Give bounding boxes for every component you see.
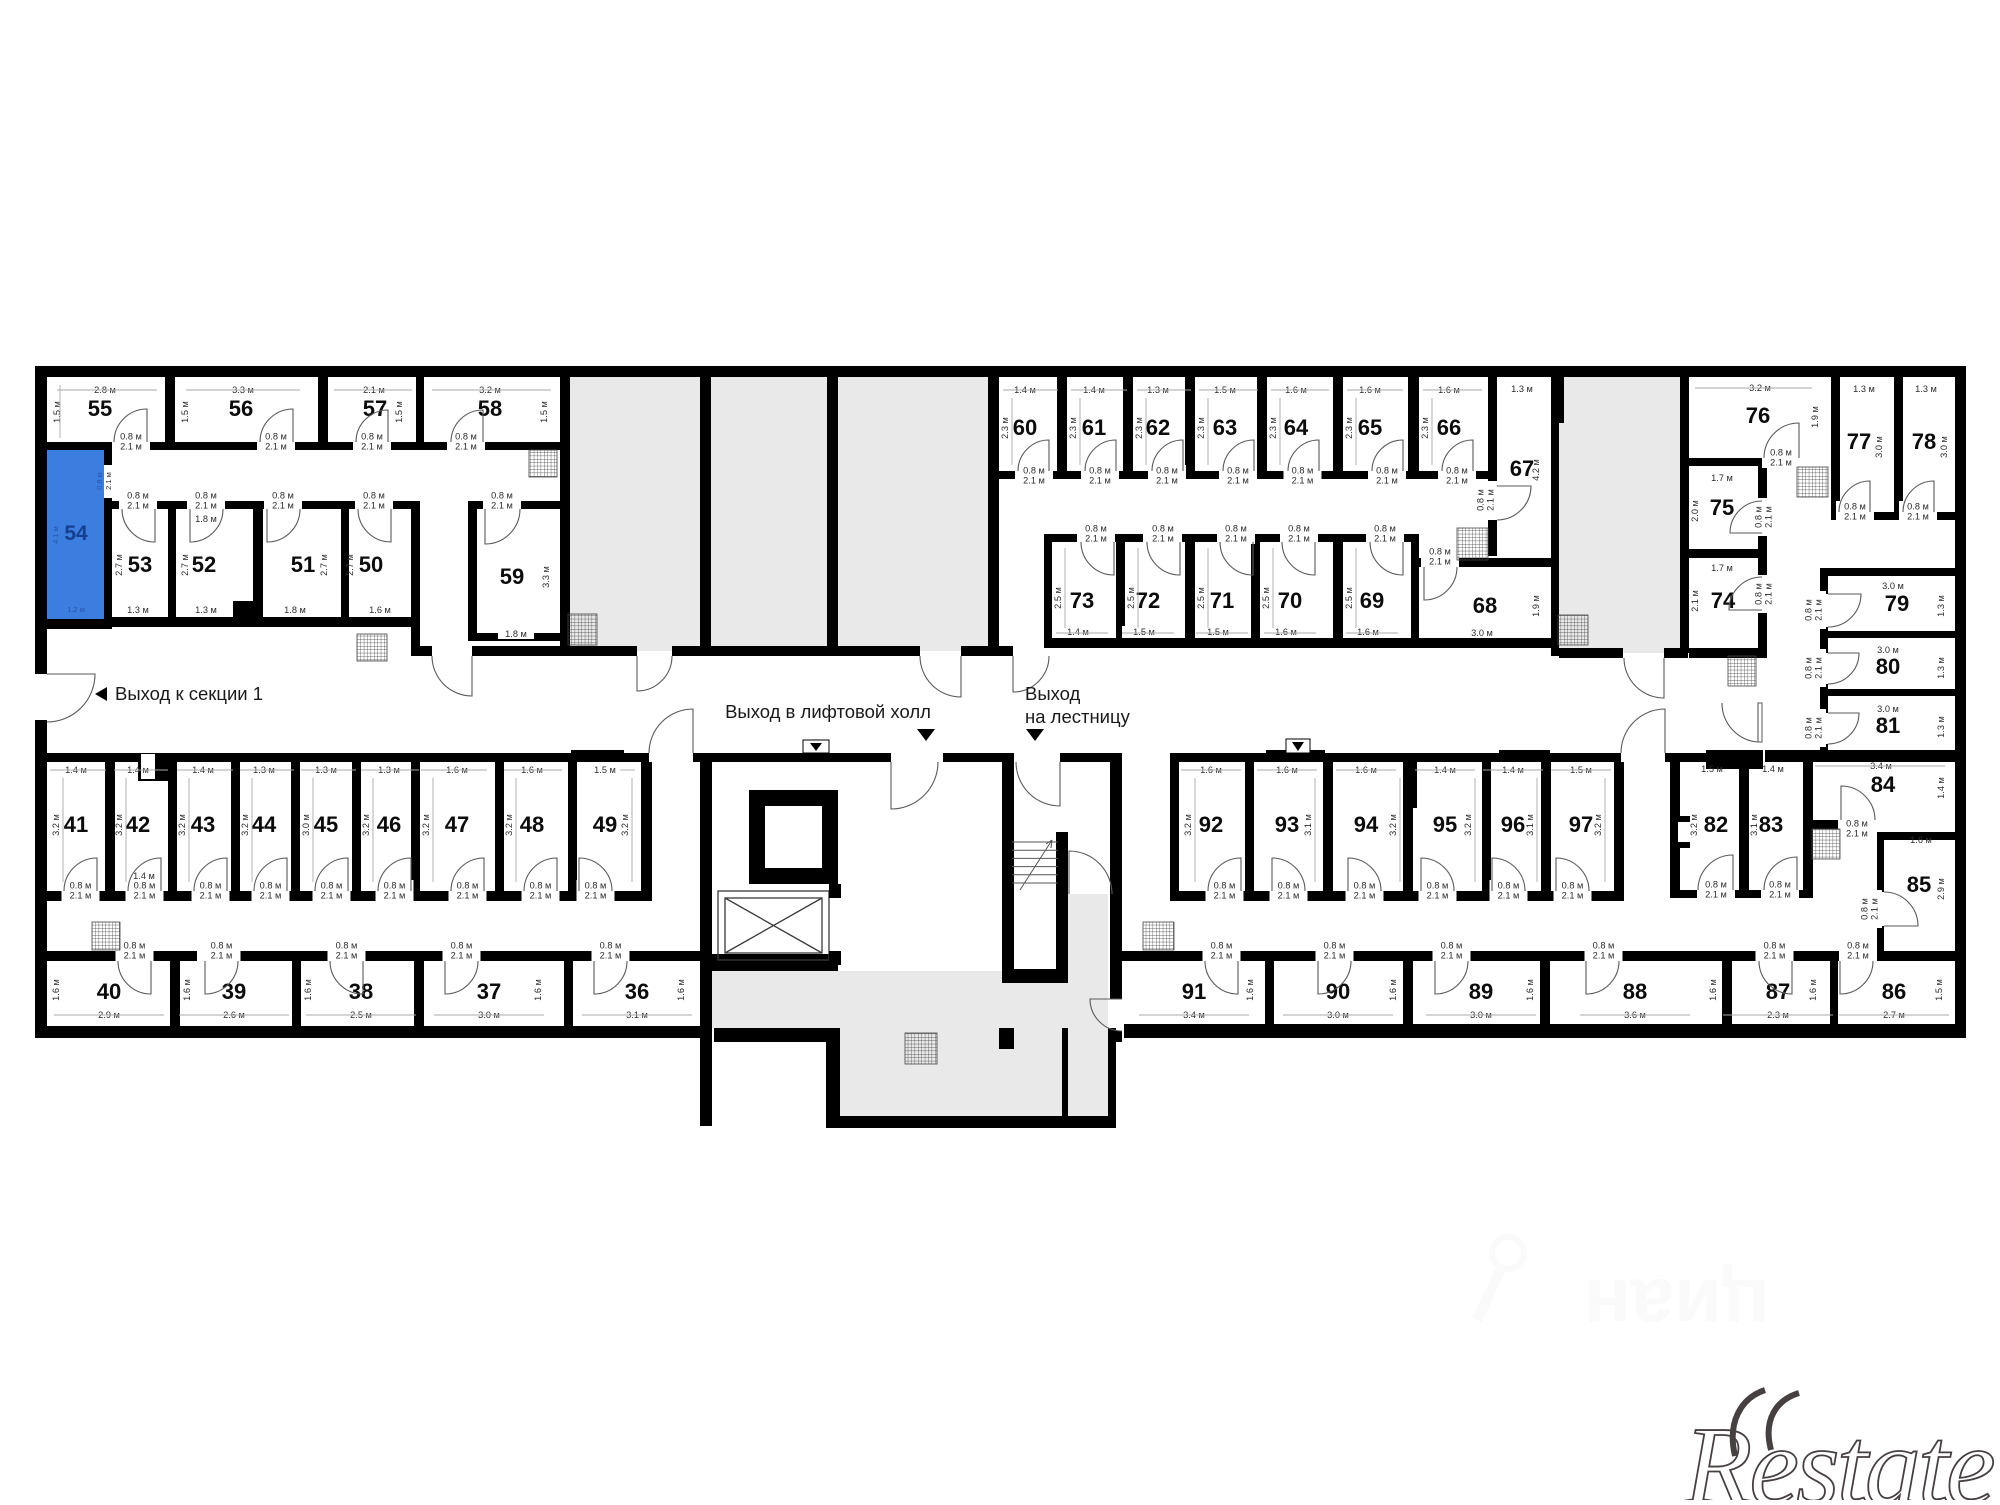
svg-text:3.2 м: 3.2 м <box>421 814 431 836</box>
svg-text:Выход: Выход <box>1025 683 1081 704</box>
svg-text:Выход в лифтовой холл: Выход в лифтовой холл <box>725 701 931 722</box>
svg-text:0.8 м: 0.8 м <box>457 881 479 891</box>
svg-text:0.8 м: 0.8 м <box>1023 466 1045 476</box>
svg-text:2.1 м: 2.1 м <box>1770 458 1792 468</box>
svg-text:3.2 м: 3.2 м <box>114 814 124 836</box>
svg-text:3.0 м: 3.0 м <box>1877 704 1899 714</box>
svg-text:0.8 м: 0.8 м <box>200 881 222 891</box>
svg-text:0.8 м: 0.8 м <box>1847 941 1869 951</box>
svg-text:2.1 м: 2.1 м <box>1847 951 1869 961</box>
svg-text:2.1 м: 2.1 м <box>1486 489 1496 511</box>
svg-text:85: 85 <box>1907 872 1931 897</box>
svg-text:93: 93 <box>1275 812 1299 837</box>
svg-text:58: 58 <box>478 396 502 421</box>
svg-text:0.8 м: 0.8 м <box>491 491 513 501</box>
svg-text:2.1 м: 2.1 м <box>361 442 383 452</box>
svg-text:0.8 м: 0.8 м <box>1446 466 1468 476</box>
svg-text:37: 37 <box>477 979 501 1004</box>
svg-text:2.1 м: 2.1 м <box>530 891 552 901</box>
svg-text:77: 77 <box>1847 429 1871 454</box>
svg-text:2.1 м: 2.1 м <box>363 501 385 511</box>
svg-text:2.1 м: 2.1 м <box>1374 534 1396 544</box>
svg-text:0.8 м: 0.8 м <box>1593 941 1615 951</box>
svg-text:0.8 м: 0.8 м <box>363 491 385 501</box>
svg-text:2.5 м: 2.5 м <box>1344 587 1354 609</box>
svg-text:1.3 м: 1.3 м <box>1511 384 1533 394</box>
svg-text:2.1 м: 2.1 м <box>127 501 149 511</box>
svg-text:2.1 м: 2.1 м <box>1562 891 1584 901</box>
svg-text:95: 95 <box>1433 812 1457 837</box>
svg-text:3.0 м: 3.0 м <box>1471 628 1493 638</box>
svg-text:71: 71 <box>1210 588 1234 613</box>
svg-text:2.1 м: 2.1 м <box>134 891 156 901</box>
svg-text:2.1 м: 2.1 м <box>1152 534 1174 544</box>
svg-text:1.5 м: 1.5 м <box>594 765 616 775</box>
svg-text:2.1 м: 2.1 м <box>1324 951 1346 961</box>
svg-text:48: 48 <box>520 812 544 837</box>
svg-text:2.1 м: 2.1 м <box>1429 557 1451 567</box>
svg-text:1.6 м: 1.6 м <box>1910 835 1932 845</box>
svg-text:44: 44 <box>252 812 277 837</box>
svg-text:1.6 м: 1.6 м <box>303 979 313 1001</box>
svg-text:0.8 м: 0.8 м <box>1211 941 1233 951</box>
svg-text:1.5 м: 1.5 м <box>180 401 190 423</box>
svg-text:Выход к секции 1: Выход к секции 1 <box>115 683 263 704</box>
svg-text:2.5 м: 2.5 м <box>1053 587 1063 609</box>
svg-text:69: 69 <box>1360 588 1384 613</box>
svg-text:2.1 м: 2.1 м <box>336 951 358 961</box>
svg-text:43: 43 <box>191 812 215 837</box>
svg-text:1.6 м: 1.6 м <box>533 979 543 1001</box>
svg-text:1.3 м: 1.3 м <box>1936 657 1946 679</box>
svg-text:2.3 м: 2.3 м <box>1344 417 1354 439</box>
svg-text:2.1 м: 2.1 м <box>1814 657 1824 679</box>
svg-text:96: 96 <box>1501 812 1525 837</box>
svg-text:1.3 м: 1.3 м <box>1936 716 1946 738</box>
svg-text:2.1 м: 2.1 м <box>1211 951 1233 961</box>
svg-text:2.1 м: 2.1 м <box>104 472 113 490</box>
svg-text:78: 78 <box>1912 429 1936 454</box>
svg-text:1.6 м: 1.6 м <box>1245 979 1255 1001</box>
svg-text:3.1 м: 3.1 м <box>1749 814 1759 836</box>
svg-text:2.9 м: 2.9 м <box>1936 878 1946 900</box>
svg-text:2.1 м: 2.1 м <box>1225 534 1247 544</box>
svg-text:2.1 м: 2.1 м <box>120 442 142 452</box>
svg-text:2.1 м: 2.1 м <box>195 501 217 511</box>
svg-text:2.1 м: 2.1 м <box>272 501 294 511</box>
svg-text:0.8 м: 0.8 м <box>1085 524 1107 534</box>
svg-text:2.5 м: 2.5 м <box>1126 587 1136 609</box>
svg-text:0.8 м: 0.8 м <box>195 491 217 501</box>
svg-text:3.0 м: 3.0 м <box>1882 581 1904 591</box>
svg-text:2.1 м: 2.1 м <box>1156 476 1178 486</box>
svg-text:0.8 м: 0.8 м <box>1374 524 1396 534</box>
svg-text:1.4 м: 1.4 м <box>1762 764 1784 774</box>
svg-text:2.1 м: 2.1 м <box>1498 891 1520 901</box>
svg-text:39: 39 <box>222 979 246 1004</box>
svg-text:47: 47 <box>445 812 469 837</box>
svg-text:4.2 м: 4.2 м <box>1531 459 1541 481</box>
svg-text:2.1 м: 2.1 м <box>1085 534 1107 544</box>
svg-text:1.6 м: 1.6 м <box>1708 979 1718 1001</box>
svg-text:1.5 м: 1.5 м <box>52 401 62 423</box>
svg-text:3.2 м: 3.2 м <box>1593 814 1603 836</box>
svg-text:0.8 м: 0.8 м <box>1441 941 1463 951</box>
svg-text:1.7 м: 1.7 м <box>1711 473 1733 483</box>
svg-text:68: 68 <box>1473 593 1497 618</box>
svg-text:79: 79 <box>1885 591 1909 616</box>
svg-text:74: 74 <box>1711 588 1736 613</box>
svg-text:3.3 м: 3.3 м <box>541 566 551 588</box>
svg-text:2.1 м: 2.1 м <box>585 891 607 901</box>
svg-text:3.2 м: 3.2 м <box>620 814 630 836</box>
svg-text:0.8 м: 0.8 м <box>1804 717 1814 739</box>
svg-text:2.1 м: 2.1 м <box>1870 898 1880 920</box>
svg-text:1.5 м: 1.5 м <box>539 401 549 423</box>
svg-text:2.1 м: 2.1 м <box>200 891 222 901</box>
svg-text:1.5 м: 1.5 м <box>1701 764 1723 774</box>
svg-text:2.1 м: 2.1 м <box>1846 829 1868 839</box>
svg-text:0.8 м: 0.8 м <box>272 491 294 501</box>
svg-text:56: 56 <box>229 396 253 421</box>
svg-text:83: 83 <box>1759 812 1783 837</box>
svg-text:Restate: Restate <box>1683 1405 1994 1500</box>
svg-text:1.9 м: 1.9 м <box>1531 595 1541 617</box>
svg-text:0.8 м: 0.8 м <box>1292 466 1314 476</box>
svg-text:2.1 м: 2.1 м <box>1292 476 1314 486</box>
svg-text:1.6 м: 1.6 м <box>182 979 192 1001</box>
svg-text:2.1 м: 2.1 м <box>1023 476 1045 486</box>
svg-text:1.5 м: 1.5 м <box>1133 627 1155 637</box>
svg-text:3.1 м: 3.1 м <box>1303 814 1313 836</box>
svg-text:0.8 м: 0.8 м <box>70 881 92 891</box>
svg-text:2.1 м: 2.1 м <box>600 951 622 961</box>
svg-text:2.1 м: 2.1 м <box>1814 599 1824 621</box>
svg-text:1.7 м: 1.7 м <box>1711 563 1733 573</box>
svg-text:0.8 м: 0.8 м <box>1754 506 1764 528</box>
svg-text:50: 50 <box>359 552 383 577</box>
svg-text:1.6 м: 1.6 м <box>1357 627 1379 637</box>
svg-text:2.3 м: 2.3 м <box>1420 417 1430 439</box>
svg-text:2.7 м: 2.7 м <box>345 554 355 576</box>
svg-text:1.3 м: 1.3 м <box>1915 384 1937 394</box>
svg-text:2.1 м: 2.1 м <box>1427 891 1449 901</box>
svg-text:2.1 м: 2.1 м <box>1690 590 1700 612</box>
svg-text:2.1 м: 2.1 м <box>491 501 513 511</box>
svg-text:1.2 м: 1.2 м <box>67 605 85 614</box>
svg-text:1.5 м: 1.5 м <box>394 401 404 423</box>
svg-text:84: 84 <box>1871 772 1896 797</box>
svg-text:1.3 м: 1.3 м <box>1853 384 1875 394</box>
svg-text:2.0 м: 2.0 м <box>1690 500 1700 522</box>
svg-text:0.8 м: 0.8 м <box>1156 466 1178 476</box>
svg-text:0.8 м: 0.8 м <box>1089 466 1111 476</box>
svg-text:3.2 м: 3.2 м <box>361 814 371 836</box>
svg-text:3.1 м: 3.1 м <box>1525 814 1535 836</box>
svg-text:1.5 м: 1.5 м <box>1207 627 1229 637</box>
svg-text:0.8 м: 0.8 м <box>1562 881 1584 891</box>
svg-text:3.2 м: 3.2 м <box>504 814 514 836</box>
svg-text:0.8 м: 0.8 м <box>1498 881 1520 891</box>
svg-text:81: 81 <box>1876 713 1900 738</box>
svg-text:0.8 м: 0.8 м <box>1476 489 1486 511</box>
svg-text:0.8 м: 0.8 м <box>124 941 146 951</box>
svg-text:0.8 м: 0.8 м <box>1225 524 1247 534</box>
svg-text:1.5 м: 1.5 м <box>1934 979 1944 1001</box>
svg-text:0.8 м: 0.8 м <box>265 432 287 442</box>
svg-text:2.1 м: 2.1 м <box>1814 717 1824 739</box>
svg-text:0.8 м: 0.8 м <box>1152 524 1174 534</box>
svg-text:3.2 м: 3.2 м <box>1689 814 1699 836</box>
svg-text:0.8 м: 0.8 м <box>1907 502 1929 512</box>
svg-text:49: 49 <box>593 812 617 837</box>
svg-text:36: 36 <box>625 979 649 1004</box>
svg-text:2.7 м: 2.7 м <box>180 554 190 576</box>
svg-text:2.1 м: 2.1 м <box>1593 951 1615 961</box>
svg-text:1.8 м: 1.8 м <box>195 514 217 524</box>
svg-text:1.8 м: 1.8 м <box>505 629 527 639</box>
svg-text:53: 53 <box>128 552 152 577</box>
svg-text:0.8 м: 0.8 м <box>260 881 282 891</box>
svg-text:2.1 м: 2.1 м <box>1441 951 1463 961</box>
svg-text:2.1 м: 2.1 м <box>1376 476 1398 486</box>
svg-text:3.0 м: 3.0 м <box>1877 645 1899 655</box>
svg-text:0.8 м: 0.8 м <box>134 881 156 891</box>
svg-text:0.8 м: 0.8 м <box>361 432 383 442</box>
svg-text:0.8 м: 0.8 м <box>1844 502 1866 512</box>
svg-text:0.8 м: 0.8 м <box>1324 941 1346 951</box>
svg-text:55: 55 <box>88 396 112 421</box>
svg-text:2.1 м: 2.1 м <box>1354 891 1376 901</box>
svg-text:2.1 м: 2.1 м <box>1769 890 1791 900</box>
svg-text:0.8 м: 0.8 м <box>1705 880 1727 890</box>
svg-text:1.6 м: 1.6 м <box>1525 979 1535 1001</box>
svg-text:2.1 м: 2.1 м <box>1227 476 1249 486</box>
svg-text:54: 54 <box>64 522 88 545</box>
svg-text:89: 89 <box>1469 979 1493 1004</box>
svg-text:3.2 м: 3.2 м <box>51 814 61 836</box>
svg-text:92: 92 <box>1199 812 1223 837</box>
svg-text:2.1 м: 2.1 м <box>1764 506 1774 528</box>
svg-text:2.1 м: 2.1 м <box>1278 891 1300 901</box>
svg-text:3.0 м: 3.0 м <box>1874 436 1884 458</box>
svg-text:3.2 м: 3.2 м <box>240 814 250 836</box>
svg-text:0.8 м: 0.8 м <box>1846 819 1868 829</box>
svg-text:2.1 м: 2.1 м <box>211 951 233 961</box>
svg-text:2.3 м: 2.3 м <box>1196 417 1206 439</box>
svg-text:2.1 м: 2.1 м <box>260 891 282 901</box>
svg-text:42: 42 <box>126 812 150 837</box>
svg-text:2.3 м: 2.3 м <box>1268 417 1278 439</box>
svg-text:2.1 м: 2.1 м <box>1764 951 1786 961</box>
svg-text:2.1 м: 2.1 м <box>1907 512 1929 522</box>
svg-text:1.6 м: 1.6 м <box>1275 627 1297 637</box>
svg-text:86: 86 <box>1882 979 1906 1004</box>
svg-text:0.8 м: 0.8 м <box>1804 599 1814 621</box>
svg-text:40: 40 <box>97 979 121 1004</box>
svg-text:0.8 м: 0.8 м <box>1860 898 1870 920</box>
svg-text:2.1 м: 2.1 м <box>455 442 477 452</box>
svg-text:3.2 м: 3.2 м <box>1388 814 1398 836</box>
svg-text:0.8 м: 0.8 м <box>1214 881 1236 891</box>
svg-text:0.8 м: 0.8 м <box>600 941 622 951</box>
svg-text:0.8 м: 0.8 м <box>95 472 104 490</box>
svg-text:70: 70 <box>1278 588 1302 613</box>
svg-text:60: 60 <box>1013 415 1037 440</box>
svg-text:64: 64 <box>1284 415 1309 440</box>
svg-text:97: 97 <box>1569 812 1593 837</box>
svg-text:80: 80 <box>1876 654 1900 679</box>
svg-text:1.6 м: 1.6 м <box>1808 979 1818 1001</box>
svg-text:0.8 м: 0.8 м <box>1427 881 1449 891</box>
svg-text:1.3 м: 1.3 м <box>195 605 217 615</box>
svg-text:0.8 м: 0.8 м <box>1804 657 1814 679</box>
svg-text:1.4 м: 1.4 м <box>133 871 155 881</box>
svg-text:76: 76 <box>1746 403 1770 428</box>
svg-text:0.8 м: 0.8 м <box>1288 524 1310 534</box>
svg-text:2.1 м: 2.1 м <box>1705 890 1727 900</box>
svg-text:73: 73 <box>1070 588 1094 613</box>
svg-text:3.0 м: 3.0 м <box>301 814 311 836</box>
svg-text:41: 41 <box>64 812 88 837</box>
svg-text:38: 38 <box>349 979 373 1004</box>
svg-text:0.8 м: 0.8 м <box>1764 941 1786 951</box>
svg-text:62: 62 <box>1146 415 1170 440</box>
svg-text:1.4 м: 1.4 м <box>1936 777 1946 799</box>
svg-text:61: 61 <box>1082 415 1106 440</box>
svg-text:0.8 м: 0.8 м <box>451 941 473 951</box>
svg-text:4.1 м: 4.1 м <box>51 526 60 544</box>
svg-text:75: 75 <box>1710 495 1734 520</box>
svg-text:82: 82 <box>1704 812 1728 837</box>
svg-text:циан: циан <box>1584 1263 1770 1351</box>
svg-text:1.9 м: 1.9 м <box>1810 406 1820 428</box>
svg-text:3.2 м: 3.2 м <box>1463 814 1473 836</box>
svg-text:1.4 м: 1.4 м <box>1067 627 1089 637</box>
svg-text:65: 65 <box>1358 415 1382 440</box>
svg-text:0.8 м: 0.8 м <box>211 941 233 951</box>
svg-text:59: 59 <box>500 564 524 589</box>
svg-text:0.8 м: 0.8 м <box>336 941 358 951</box>
svg-text:52: 52 <box>192 552 216 577</box>
svg-text:1.6 м: 1.6 м <box>1388 979 1398 1001</box>
svg-text:0.8 м: 0.8 м <box>127 491 149 501</box>
svg-text:1.6 м: 1.6 м <box>676 979 686 1001</box>
svg-text:2.1 м: 2.1 м <box>1844 512 1866 522</box>
svg-text:66: 66 <box>1437 415 1461 440</box>
svg-text:0.8 м: 0.8 м <box>1769 880 1791 890</box>
svg-text:3.2 м: 3.2 м <box>1183 814 1193 836</box>
svg-text:0.8 м: 0.8 м <box>1354 881 1376 891</box>
svg-text:45: 45 <box>314 812 338 837</box>
svg-text:2.5 м: 2.5 м <box>1196 587 1206 609</box>
svg-text:72: 72 <box>1136 588 1160 613</box>
svg-text:2.7 м: 2.7 м <box>114 554 124 576</box>
svg-text:2.1 м: 2.1 м <box>265 442 287 452</box>
svg-text:0.8 м: 0.8 м <box>530 881 552 891</box>
svg-text:2.1 м: 2.1 м <box>1446 476 1468 486</box>
svg-text:88: 88 <box>1623 979 1647 1004</box>
svg-text:2.7 м: 2.7 м <box>319 554 329 576</box>
svg-text:2.1 м: 2.1 м <box>70 891 92 901</box>
svg-text:2.1 м: 2.1 м <box>1288 534 1310 544</box>
svg-text:2.3 м: 2.3 м <box>1068 417 1078 439</box>
svg-text:2.1 м: 2.1 м <box>384 891 406 901</box>
svg-text:0.8 м: 0.8 м <box>321 881 343 891</box>
svg-text:57: 57 <box>363 396 387 421</box>
svg-text:на лестницу: на лестницу <box>1025 706 1131 727</box>
svg-text:1.8 м: 1.8 м <box>284 605 306 615</box>
svg-text:0.8 м: 0.8 м <box>1770 448 1792 458</box>
svg-text:2.1 м: 2.1 м <box>1089 476 1111 486</box>
svg-text:2.1 м: 2.1 м <box>451 951 473 961</box>
svg-text:3.2 м: 3.2 м <box>177 814 187 836</box>
svg-text:1.6 м: 1.6 м <box>51 979 61 1001</box>
svg-text:1.3 м: 1.3 м <box>1936 595 1946 617</box>
svg-text:0.8 м: 0.8 м <box>585 881 607 891</box>
svg-text:3.0 м: 3.0 м <box>1939 436 1949 458</box>
svg-text:63: 63 <box>1213 415 1237 440</box>
svg-text:2.1 м: 2.1 м <box>321 891 343 901</box>
svg-text:0.8 м: 0.8 м <box>120 432 142 442</box>
svg-text:0.8 м: 0.8 м <box>1429 547 1451 557</box>
svg-text:46: 46 <box>377 812 401 837</box>
svg-text:2.1 м: 2.1 м <box>457 891 479 901</box>
svg-text:91: 91 <box>1182 979 1206 1004</box>
svg-text:2.1 м: 2.1 м <box>124 951 146 961</box>
svg-text:0.8 м: 0.8 м <box>1278 881 1300 891</box>
svg-text:0.8 м: 0.8 м <box>1227 466 1249 476</box>
svg-text:94: 94 <box>1354 812 1379 837</box>
svg-text:1.6 м: 1.6 м <box>369 605 391 615</box>
svg-text:0.8 м: 0.8 м <box>455 432 477 442</box>
svg-text:2.1 м: 2.1 м <box>1214 891 1236 901</box>
svg-text:2.3 м: 2.3 м <box>1000 417 1010 439</box>
svg-text:51: 51 <box>291 552 315 577</box>
svg-text:1.3 м: 1.3 м <box>127 605 149 615</box>
svg-text:0.8 м: 0.8 м <box>384 881 406 891</box>
svg-text:2.3 м: 2.3 м <box>1134 417 1144 439</box>
svg-text:0.8 м: 0.8 м <box>1376 466 1398 476</box>
svg-text:2.5 м: 2.5 м <box>1261 587 1271 609</box>
svg-text:2.1 м: 2.1 м <box>1764 583 1774 605</box>
svg-text:0.8 м: 0.8 м <box>1754 583 1764 605</box>
